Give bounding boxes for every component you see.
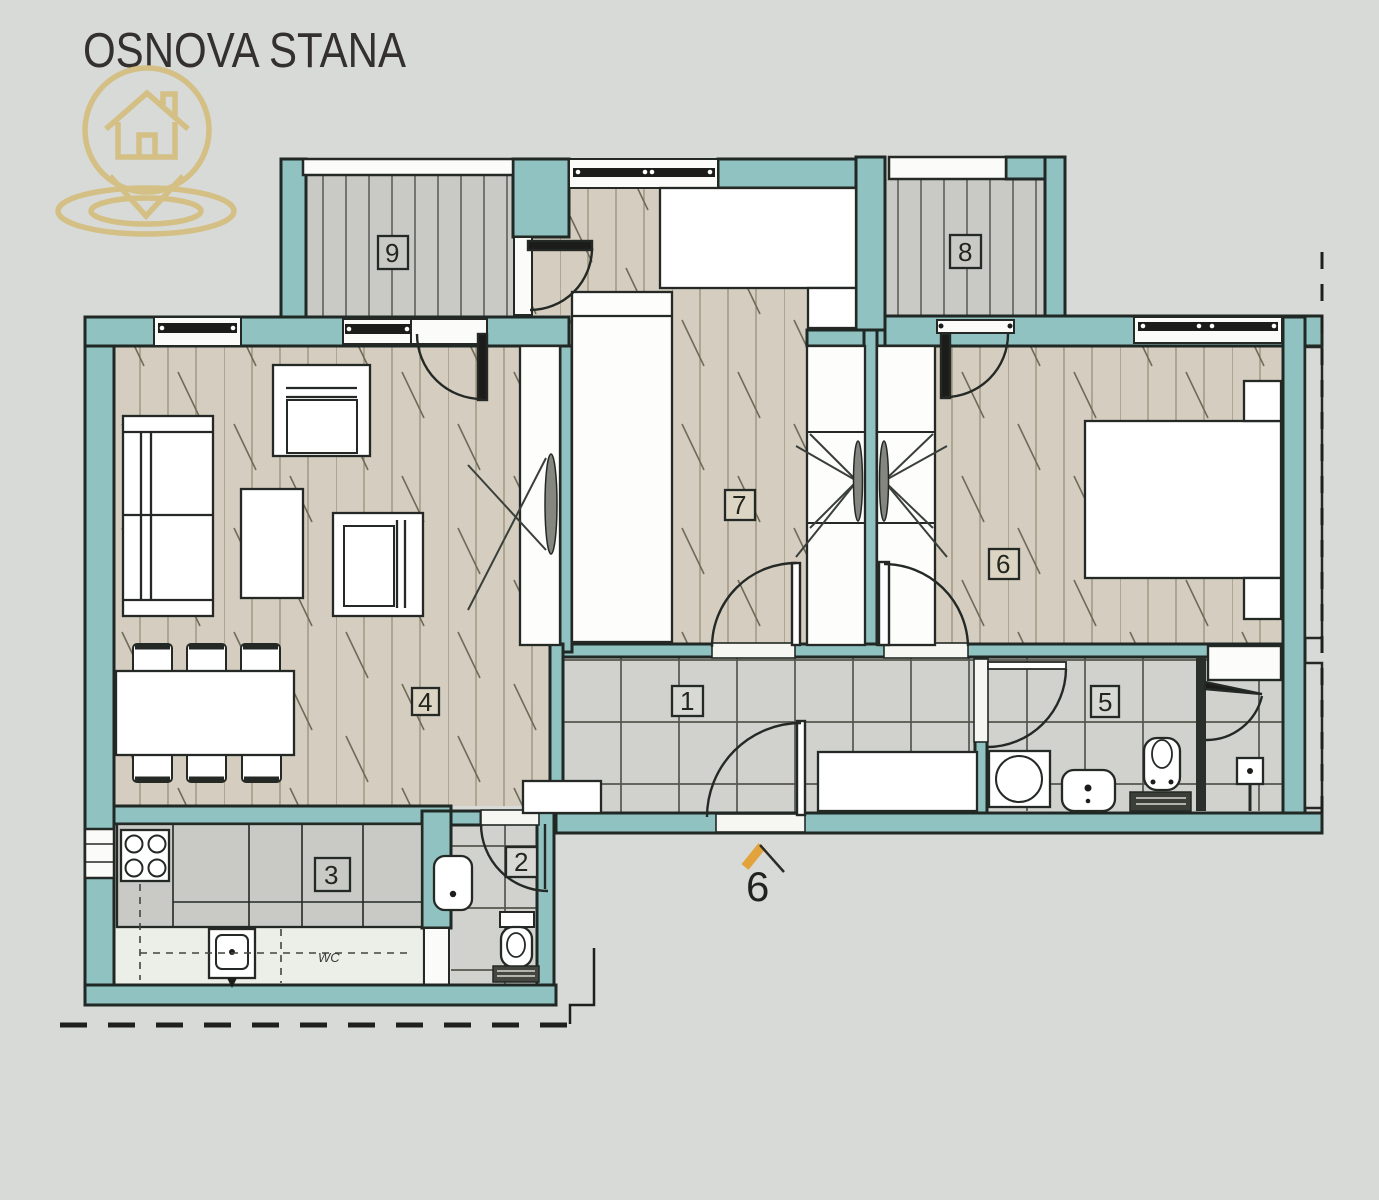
svg-text:6: 6: [996, 549, 1010, 579]
svg-text:1: 1: [680, 686, 694, 716]
svg-text:3: 3: [324, 860, 338, 890]
svg-text:5: 5: [1098, 687, 1112, 717]
svg-text:9: 9: [385, 238, 399, 268]
svg-text:6: 6: [746, 863, 769, 910]
svg-text:7: 7: [732, 490, 746, 520]
svg-text:8: 8: [958, 237, 972, 267]
svg-text:WC: WC: [318, 950, 340, 965]
svg-text:2: 2: [514, 847, 528, 877]
svg-text:4: 4: [418, 687, 432, 717]
